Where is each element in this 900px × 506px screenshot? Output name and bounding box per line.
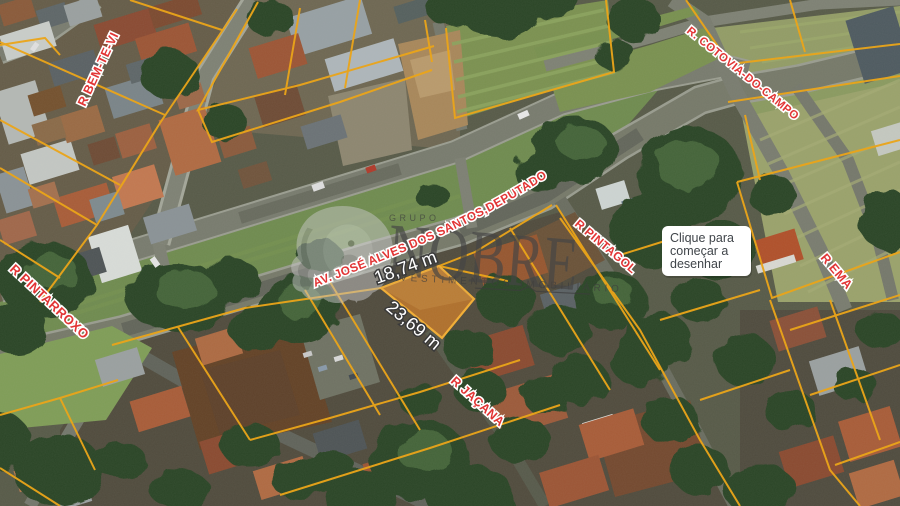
svg-text:começar a: começar a xyxy=(670,244,728,258)
svg-text:Clique para: Clique para xyxy=(670,231,734,245)
svg-text:desenhar: desenhar xyxy=(670,257,722,271)
